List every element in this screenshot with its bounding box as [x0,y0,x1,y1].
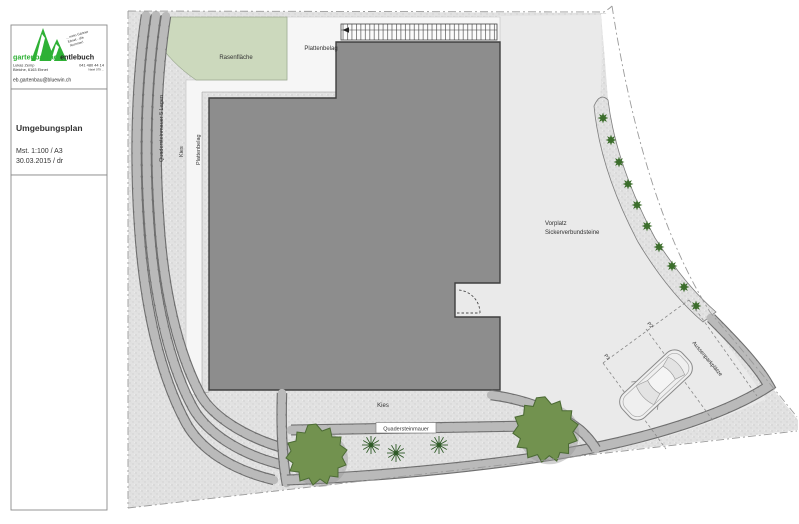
entrance-notch-floor [455,283,500,317]
label-gravel-left: Kies [179,146,185,157]
label-forecourt-1: Vorplatz [545,221,567,227]
label-gravel-bottom: Kies [377,403,389,409]
stairs-strip [341,24,497,40]
contact-address: Bleiche, 6163 Ebnet [13,67,49,72]
plan-sheet: Rasenfläche Plattenbelag Quadersteinmaue… [0,0,799,524]
label-wall-left: Quadersteinmauer 5 Lagen [159,95,165,162]
plan-date: 30.03.2015 / dr [16,158,64,165]
label-paving-top: Plattenbelag [304,46,337,52]
contact-email: eb.gartenbau@bluewin.ch [13,78,71,84]
contact-phone2: Natel 079 ... [88,68,104,72]
site-plan-drawing: Rasenfläche Plattenbelag Quadersteinmaue… [125,6,798,524]
label-forecourt-2: Sickerverbundsteine [545,230,600,236]
plan-scale: Mst. 1:100 / A3 [16,148,63,155]
title-block: ... mein Gärtner Ebnet - die Nummer! gar… [11,25,107,510]
title-block-empty-box [11,175,107,510]
label-lawn: Rasenfläche [219,55,253,61]
brand-name: gartenbau ag entlebuch [13,53,94,62]
label-paving-left: Plattenbelag [196,134,202,165]
label-wall-bottom-box: Quadersteinmauer [376,423,436,434]
plan-title: Umgebungsplan [16,123,83,133]
label-wall-bottom: Quadersteinmauer [383,426,429,432]
